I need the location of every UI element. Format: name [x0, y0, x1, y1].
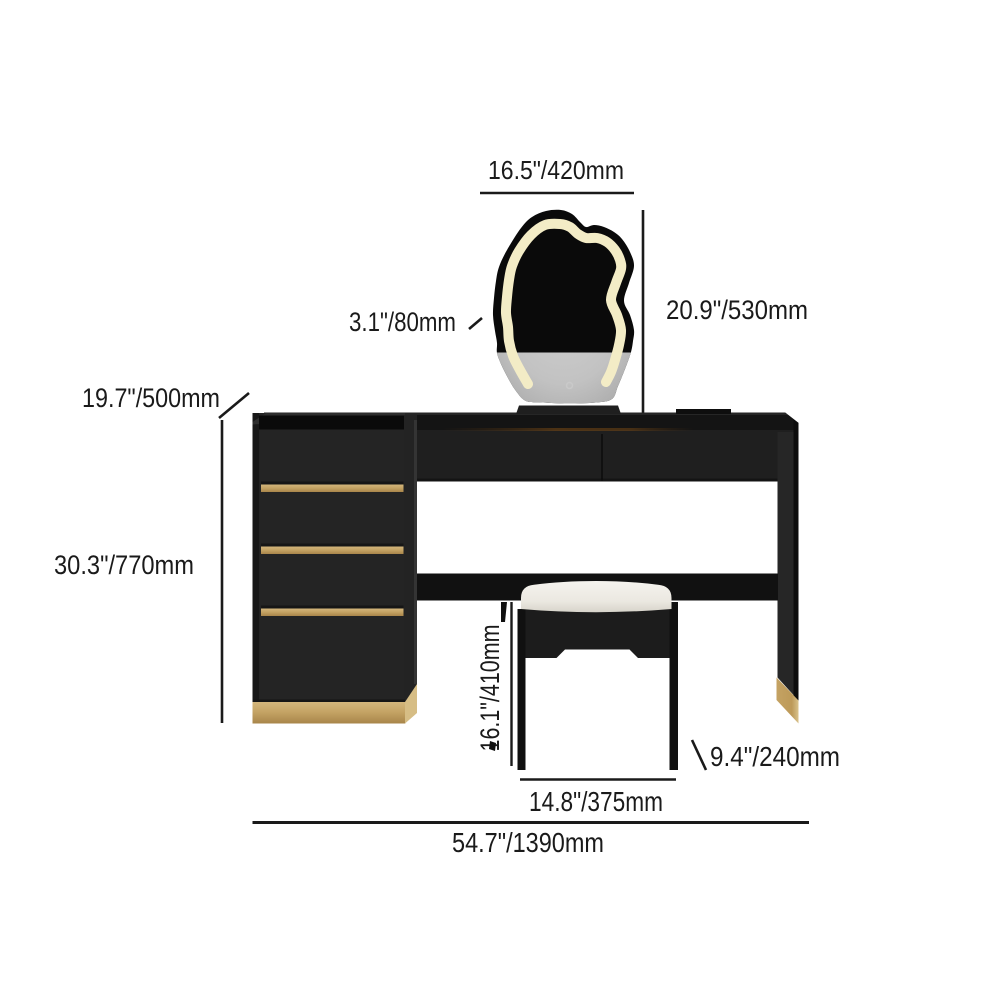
svg-text:16.5"/420mm: 16.5"/420mm [488, 155, 624, 185]
svg-text:3.1"/80mm: 3.1"/80mm [349, 307, 456, 337]
svg-text:9.4"/240mm: 9.4"/240mm [710, 741, 840, 772]
svg-text:20.9"/530mm: 20.9"/530mm [666, 295, 808, 325]
svg-text:54.7"/1390mm: 54.7"/1390mm [452, 827, 604, 858]
svg-text:19.7"/500mm: 19.7"/500mm [82, 383, 220, 413]
svg-text:30.3"/770mm: 30.3"/770mm [54, 550, 194, 580]
svg-text:16.1"/410mm: 16.1"/410mm [475, 625, 505, 752]
svg-text:14.8"/375mm: 14.8"/375mm [529, 786, 663, 817]
